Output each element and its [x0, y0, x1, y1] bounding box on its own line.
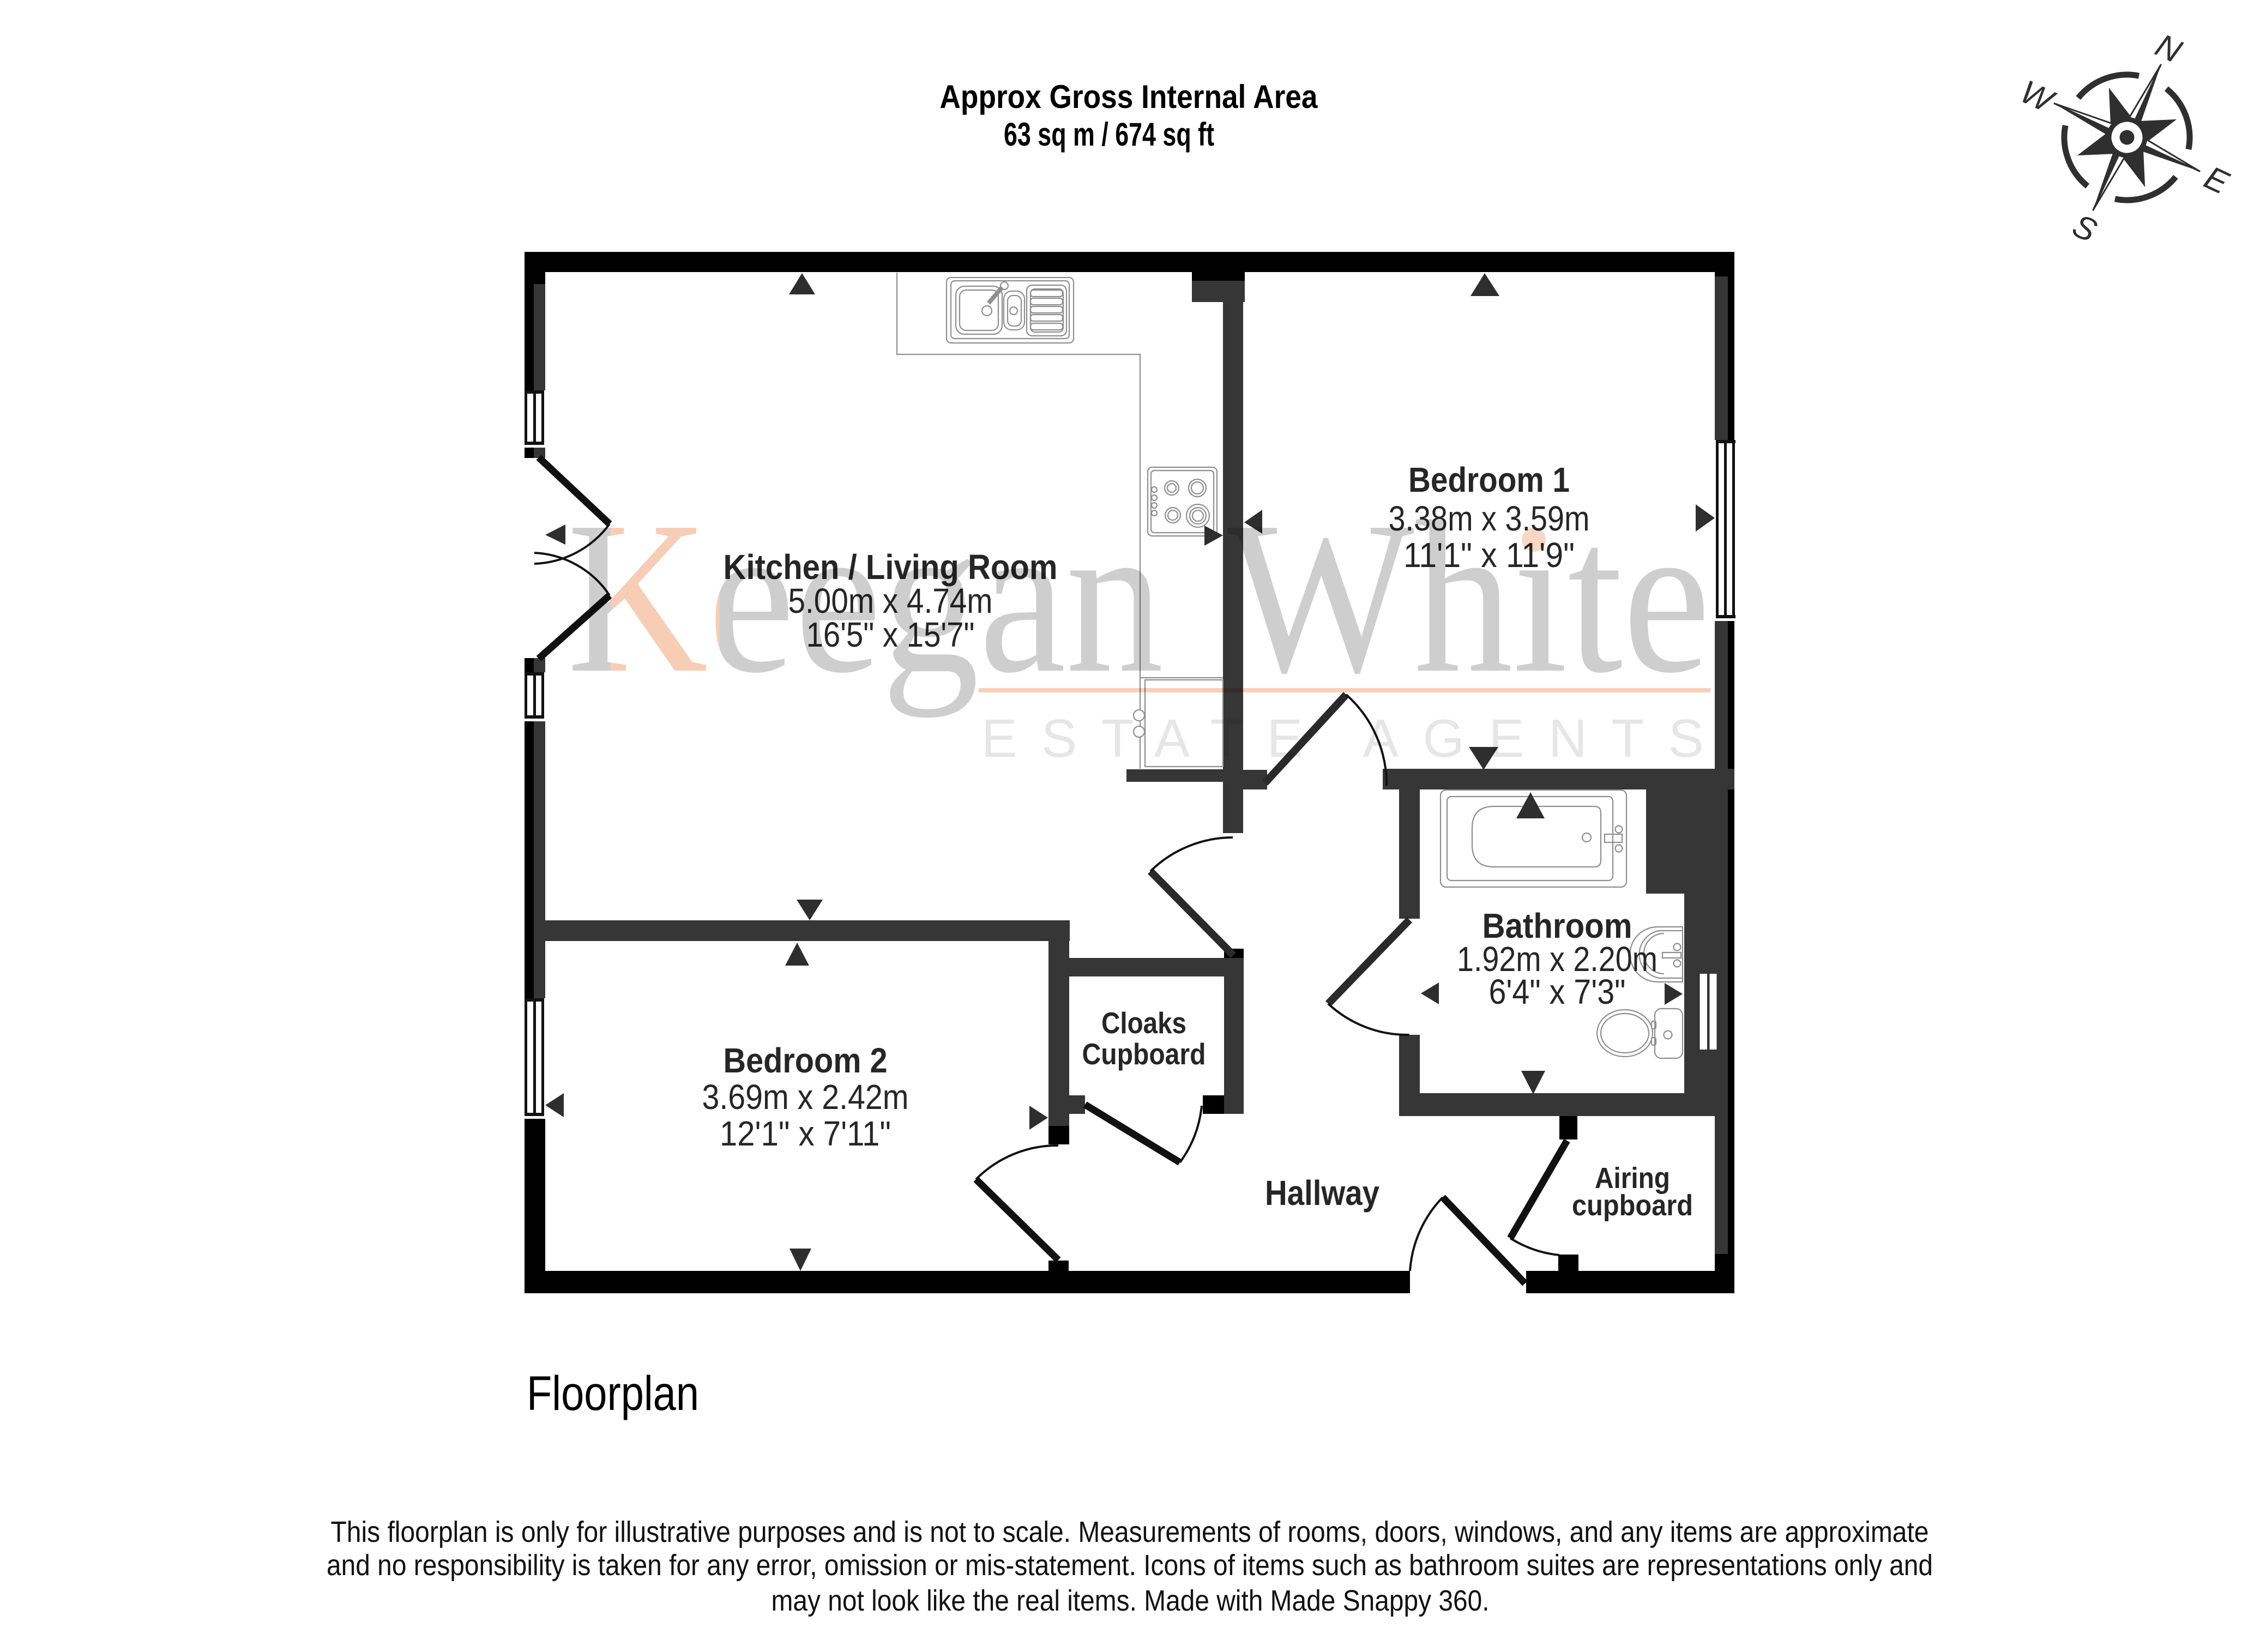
svg-text:63 sq m / 674 sq ft: 63 sq m / 674 sq ft [1004, 116, 1214, 153]
svg-text:cupboard: cupboard [1572, 1189, 1693, 1222]
svg-text:Cupboard: Cupboard [1082, 1037, 1206, 1071]
svg-text:Approx Gross Internal Area: Approx Gross Internal Area [940, 79, 1318, 115]
svg-text:12'1" x 7'11": 12'1" x 7'11" [720, 1114, 891, 1153]
svg-text:Whıte: Whıte [1227, 477, 1710, 718]
svg-text:This floorplan is only for ill: This floorplan is only for illustrative … [331, 1516, 1929, 1548]
svg-text:3.69m x 2.42m: 3.69m x 2.42m [702, 1077, 909, 1117]
svg-text:Floorplan: Floorplan [527, 1366, 699, 1420]
svg-text:Hallway: Hallway [1265, 1173, 1379, 1213]
svg-text:and no responsibility is taken: and no responsibility is taken for any e… [327, 1549, 1933, 1582]
svg-text:Cloaks: Cloaks [1101, 1006, 1186, 1040]
svg-text:Bedroom 2: Bedroom 2 [724, 1041, 888, 1080]
svg-text:6'4" x 7'3": 6'4" x 7'3" [1489, 972, 1626, 1011]
svg-text:may not look like the real ite: may not look like the real items. Made w… [772, 1584, 1490, 1617]
